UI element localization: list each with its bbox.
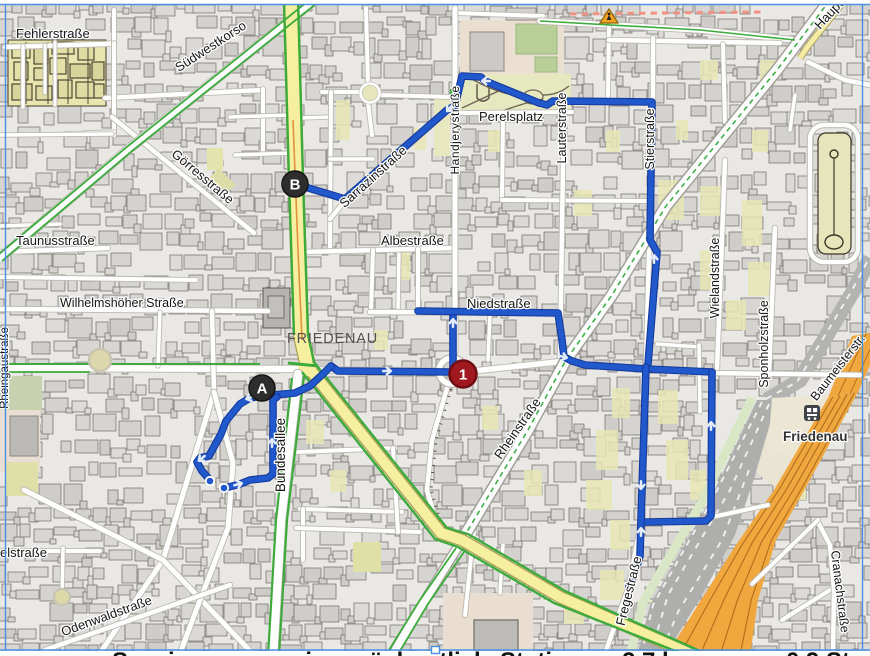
svg-text:Friedenau: Friedenau: [783, 429, 848, 444]
svg-text:Taunusstraße: Taunusstraße: [16, 233, 95, 248]
svg-text:Perelsplatz: Perelsplatz: [479, 109, 543, 124]
svg-text:1: 1: [459, 367, 467, 384]
svg-text:Bundesallee: Bundesallee: [273, 418, 288, 492]
svg-text:Handjerystraße: Handjerystraße: [448, 85, 462, 174]
svg-text:FRIEDENAU: FRIEDENAU: [287, 331, 378, 347]
svg-text:Albestraße: Albestraße: [381, 233, 444, 248]
svg-text:Stierstraße: Stierstraße: [643, 108, 657, 169]
svg-text:Sponholzstraße: Sponholzstraße: [757, 300, 771, 388]
svg-text:Wielandstraße: Wielandstraße: [708, 238, 722, 319]
svg-text:Lauterstraße: Lauterstraße: [555, 93, 569, 164]
svg-text:Niedstraße: Niedstraße: [467, 296, 531, 311]
svg-text:A: A: [257, 381, 268, 398]
svg-text:Wilhelmshöher Straße: Wilhelmshöher Straße: [60, 296, 184, 310]
svg-text:B: B: [290, 177, 301, 194]
svg-text:elstraße: elstraße: [0, 545, 47, 560]
svg-text:Fehlerstraße: Fehlerstraße: [16, 26, 90, 41]
